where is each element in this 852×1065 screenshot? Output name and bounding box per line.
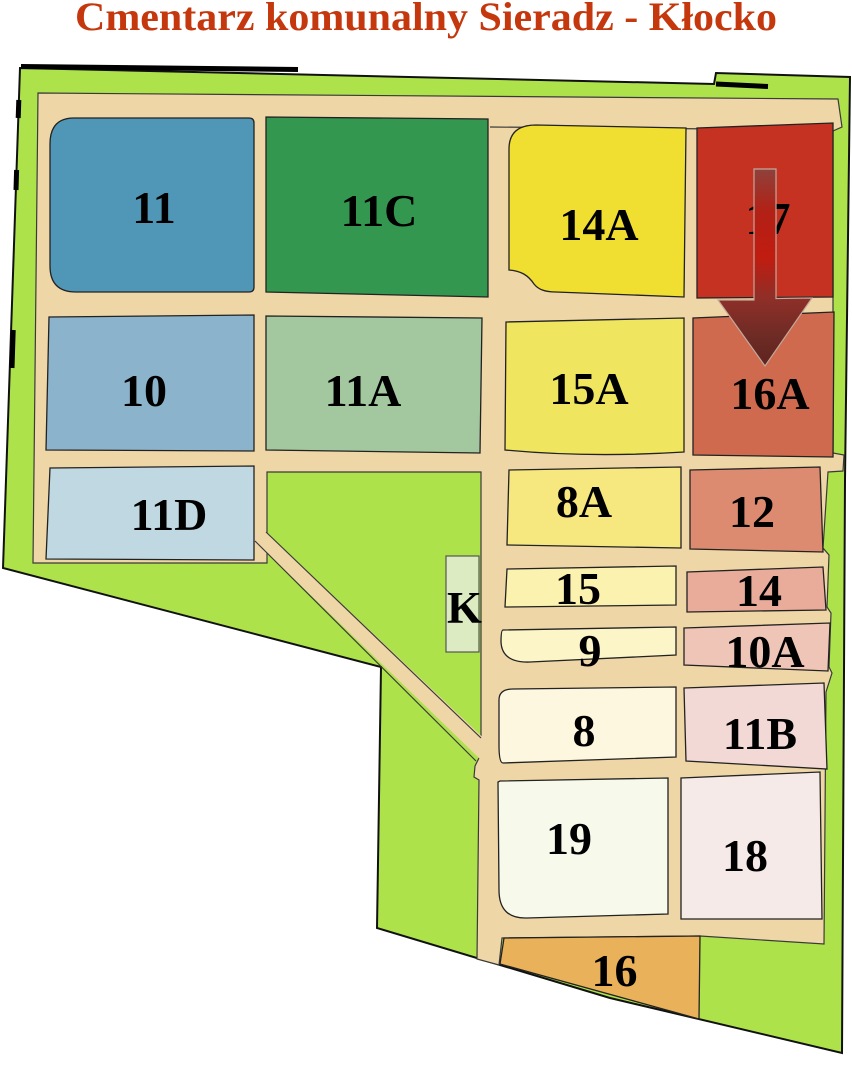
- svg-text:12: 12: [729, 486, 775, 537]
- svg-text:15A: 15A: [549, 363, 628, 414]
- svg-text:14A: 14A: [559, 199, 638, 250]
- svg-text:14: 14: [736, 565, 782, 616]
- svg-text:11C: 11C: [341, 185, 418, 236]
- svg-text:15: 15: [555, 563, 601, 614]
- svg-text:11: 11: [132, 182, 175, 233]
- svg-text:11B: 11B: [723, 708, 797, 759]
- svg-text:K: K: [447, 583, 482, 633]
- svg-text:8A: 8A: [556, 476, 612, 527]
- svg-text:18: 18: [722, 830, 768, 881]
- svg-text:Cmentarz komunalny Sieradz - K: Cmentarz komunalny Sieradz - Kłocko: [75, 0, 777, 39]
- svg-text:19: 19: [546, 813, 592, 864]
- svg-text:16A: 16A: [730, 368, 809, 419]
- svg-text:10: 10: [121, 365, 167, 416]
- svg-text:11D: 11D: [131, 489, 208, 540]
- svg-text:11A: 11A: [325, 365, 402, 416]
- svg-text:8: 8: [573, 705, 596, 756]
- svg-text:10A: 10A: [725, 626, 804, 677]
- svg-text:16: 16: [592, 945, 638, 996]
- svg-text:9: 9: [579, 625, 602, 676]
